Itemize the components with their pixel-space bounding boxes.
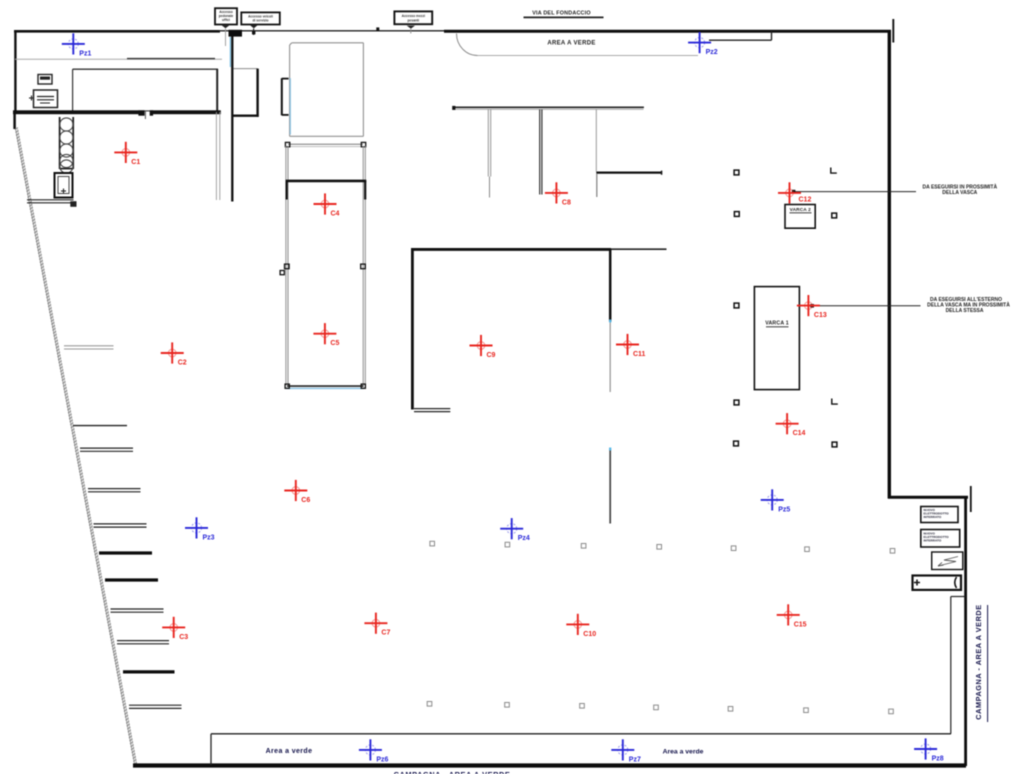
svg-text:C4: C4 <box>331 211 340 218</box>
svg-text:Pz7: Pz7 <box>629 756 641 763</box>
svg-text:Pz6: Pz6 <box>376 756 388 763</box>
svg-text:INTERRATO: INTERRATO <box>924 539 942 543</box>
svg-text:DELLA VASCA: DELLA VASCA <box>942 190 977 196</box>
svg-text:C3: C3 <box>179 634 188 641</box>
svg-text:C5: C5 <box>330 340 339 347</box>
svg-text:C8: C8 <box>562 199 571 206</box>
svg-text:DELLA STESSA: DELLA STESSA <box>946 308 984 314</box>
svg-text:Pz3: Pz3 <box>203 534 215 541</box>
svg-text:AREA A VERDE: AREA A VERDE <box>547 41 595 47</box>
svg-text:C11: C11 <box>633 351 646 358</box>
svg-text:C12: C12 <box>799 197 812 204</box>
svg-text:Area a verde: Area a verde <box>266 748 313 755</box>
svg-text:INTERRATO: INTERRATO <box>924 515 942 519</box>
svg-text:C10: C10 <box>583 631 596 638</box>
svg-text:Pz4: Pz4 <box>518 535 530 542</box>
svg-text:C15: C15 <box>794 621 807 628</box>
svg-text:Pz8: Pz8 <box>932 756 944 763</box>
svg-text:Area a verde: Area a verde <box>663 748 704 755</box>
svg-text:C14: C14 <box>793 430 806 437</box>
svg-text:Pz1: Pz1 <box>79 50 91 57</box>
svg-text:C9: C9 <box>487 352 496 359</box>
svg-text:di servizio: di servizio <box>252 19 268 23</box>
svg-text:VIA DEL FONDACCIO: VIA DEL FONDACCIO <box>532 10 591 16</box>
svg-text:C7: C7 <box>381 630 390 637</box>
svg-text:Pz5: Pz5 <box>778 506 790 513</box>
svg-text:VARCA 1: VARCA 1 <box>765 321 789 327</box>
svg-text:C6: C6 <box>301 497 310 504</box>
svg-text:VARCA 2: VARCA 2 <box>790 207 811 213</box>
svg-text:Pz2: Pz2 <box>706 49 718 56</box>
svg-text:CAMPAGNA - AREA A VERDE: CAMPAGNA - AREA A VERDE <box>394 770 511 774</box>
svg-text:C13: C13 <box>814 312 827 319</box>
svg-text:CAMPAGNA - AREA A VERDE: CAMPAGNA - AREA A VERDE <box>974 604 983 719</box>
svg-text:pesanti: pesanti <box>408 18 420 22</box>
svg-text:uffici: uffici <box>222 18 230 22</box>
svg-text:C1: C1 <box>131 159 140 166</box>
svg-text:C2: C2 <box>178 360 187 367</box>
